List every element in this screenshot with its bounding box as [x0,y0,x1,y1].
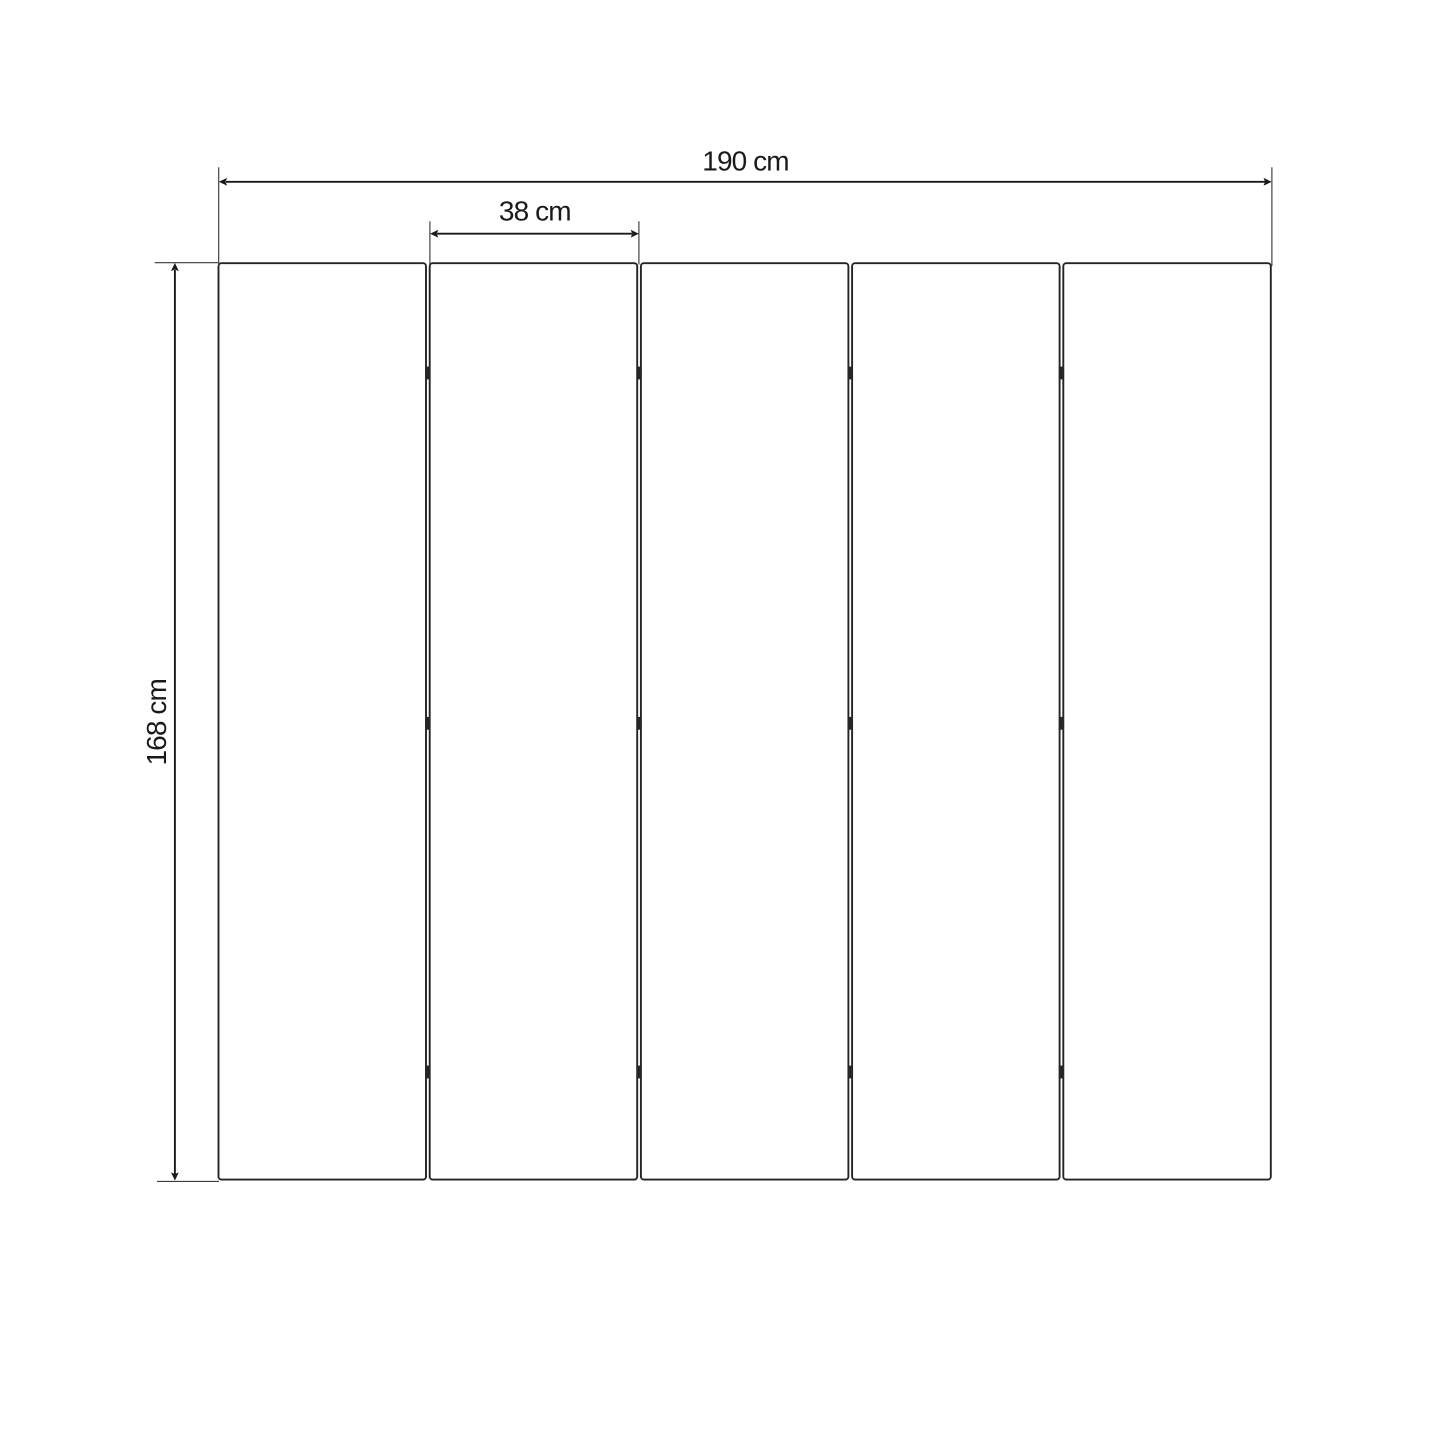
svg-text:38 cm: 38 cm [499,196,571,227]
svg-text:168 cm: 168 cm [141,679,172,765]
svg-text:190 cm: 190 cm [702,145,788,176]
